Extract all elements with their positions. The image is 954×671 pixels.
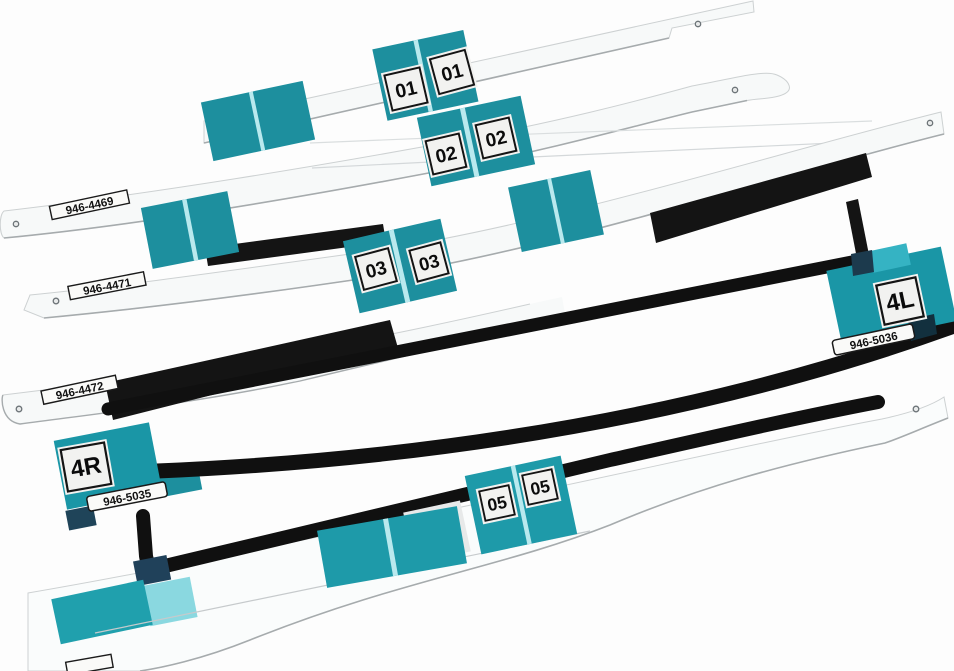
svg-text:4R: 4R (69, 452, 104, 484)
svg-text:4L: 4L (884, 285, 917, 317)
